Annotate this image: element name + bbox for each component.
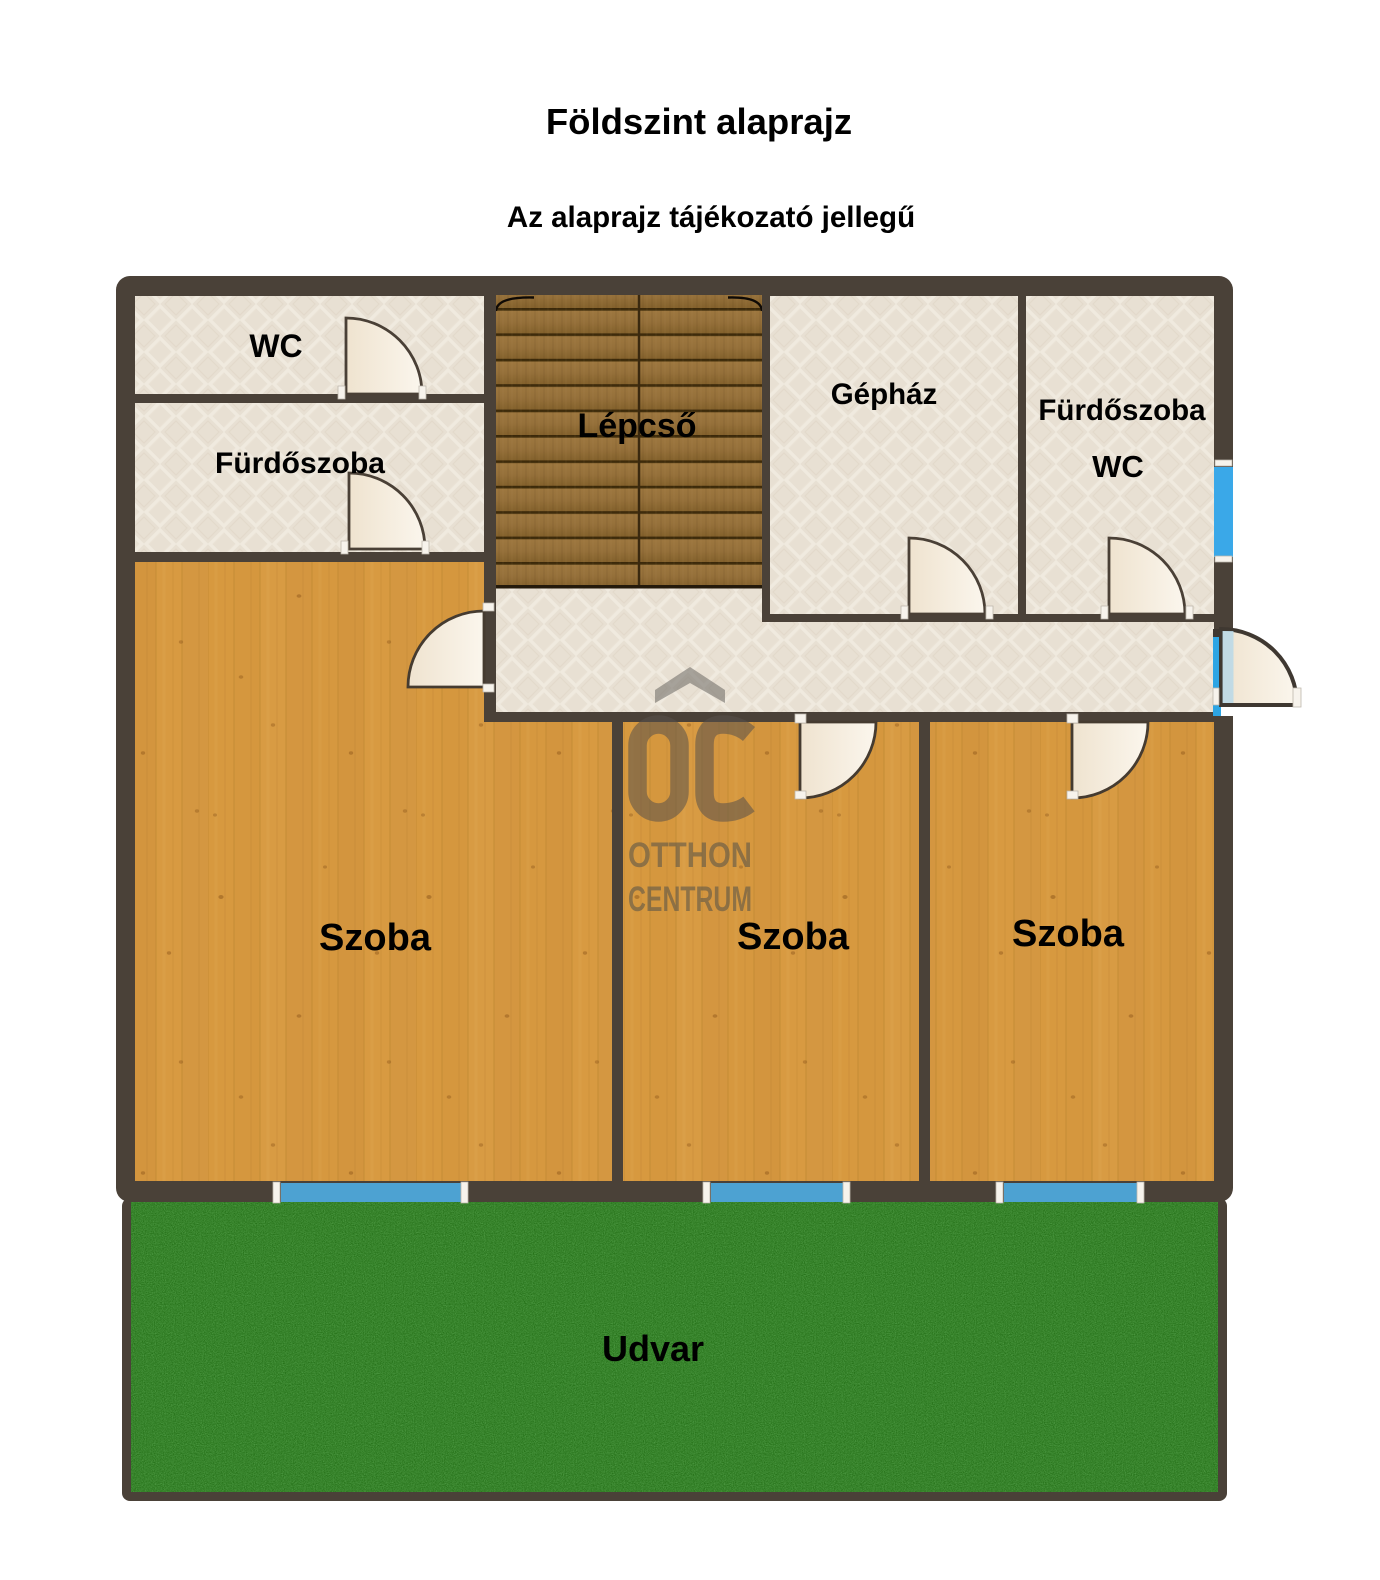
svg-text:Szoba: Szoba (737, 916, 850, 958)
svg-text:Földszint alaprajz: Földszint alaprajz (546, 101, 852, 142)
svg-text:Fürdőszoba: Fürdőszoba (215, 447, 385, 480)
svg-text:WC: WC (1092, 449, 1144, 484)
svg-text:Az alaprajz tájékozató jellegű: Az alaprajz tájékozató jellegű (507, 201, 915, 234)
svg-text:WC: WC (249, 328, 302, 364)
svg-text:Fürdőszoba: Fürdőszoba (1038, 394, 1206, 427)
svg-text:Lépcső: Lépcső (577, 407, 696, 445)
svg-text:Gépház: Gépház (831, 378, 938, 411)
svg-text:Szoba: Szoba (319, 917, 432, 959)
svg-text:OTTHON: OTTHON (628, 836, 752, 875)
svg-text:CENTRUM: CENTRUM (628, 880, 752, 919)
svg-text:Szoba: Szoba (1012, 913, 1125, 955)
svg-text:Udvar: Udvar (602, 1328, 704, 1369)
